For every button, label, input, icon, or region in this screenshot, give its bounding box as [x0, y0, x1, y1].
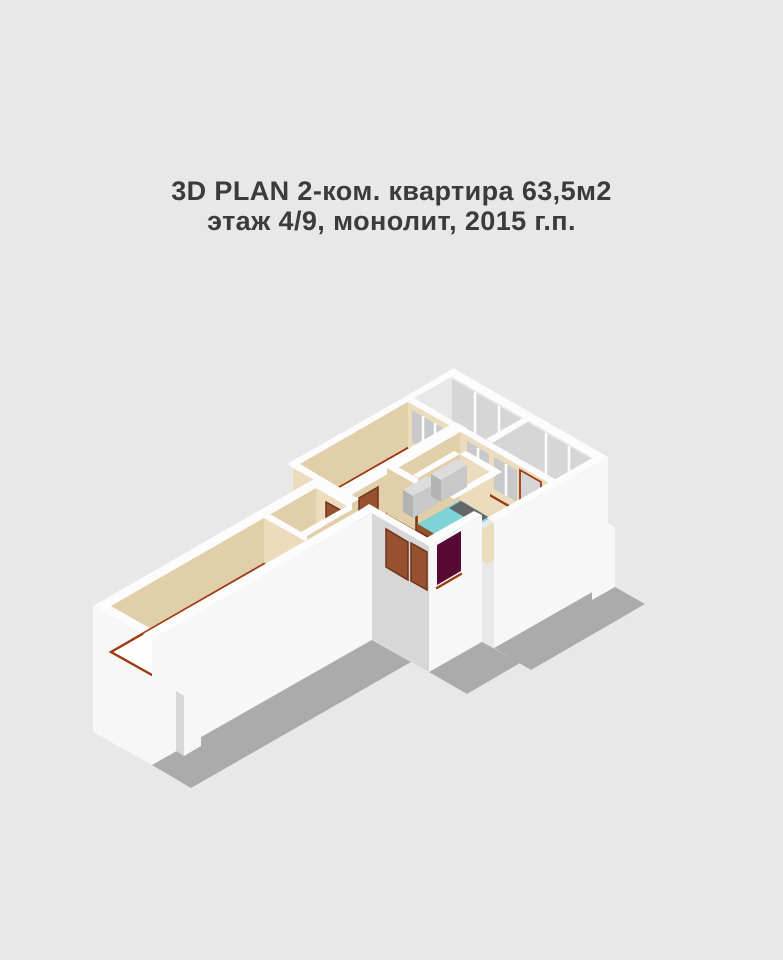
foundation-foot-front [184, 686, 201, 756]
floor-plan-3d [0, 0, 783, 960]
hall-door [411, 543, 427, 590]
foundation-foot-side [176, 691, 184, 756]
floor-plan-image: 3D PLAN 2-ком. квартира 63,5м2 этаж 4/9,… [0, 0, 783, 960]
